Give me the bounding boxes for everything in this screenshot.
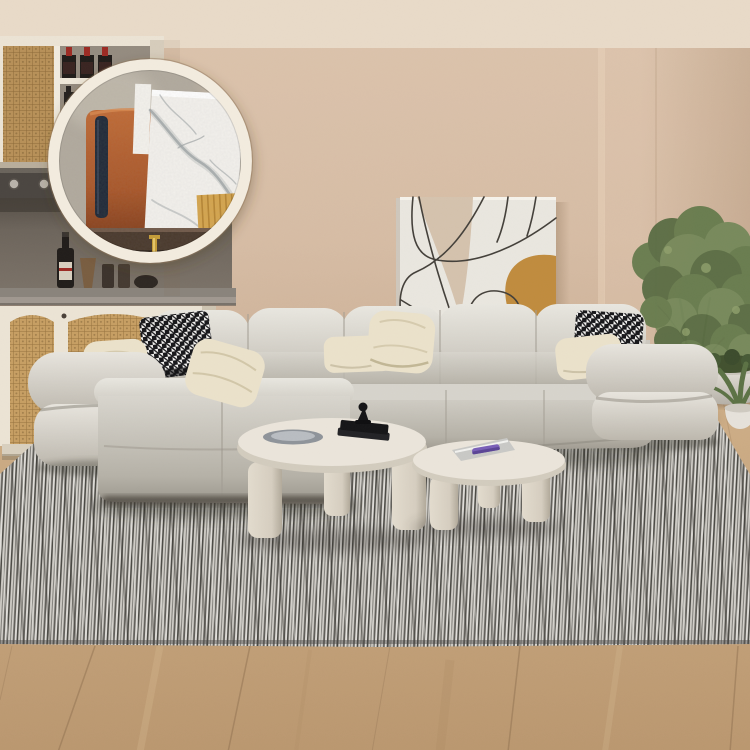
photo-grain-overlay [0,0,750,750]
scene-canvas [0,0,750,750]
living-room-photo [0,0,750,750]
